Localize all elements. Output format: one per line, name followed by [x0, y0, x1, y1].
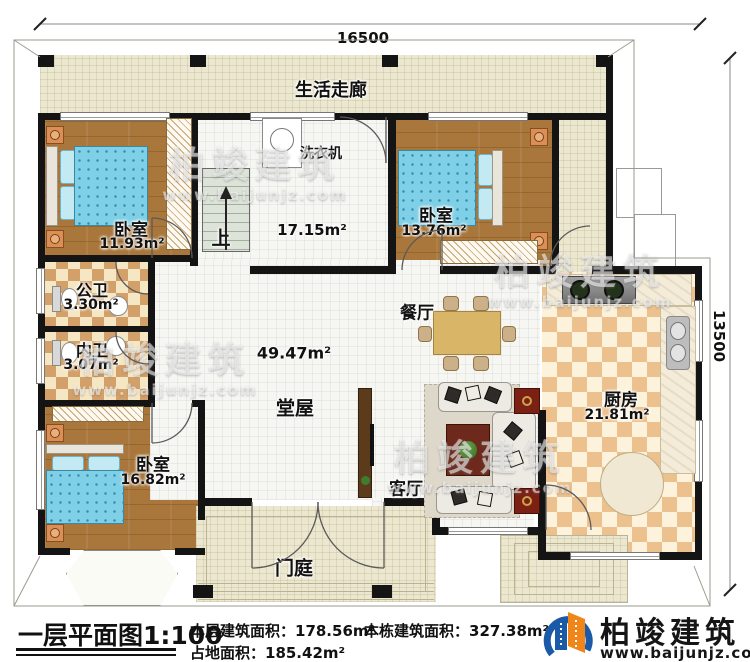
dining-chair	[473, 296, 489, 311]
wall	[440, 266, 556, 274]
entry-steps	[198, 576, 434, 600]
room-label-porch: 门庭	[275, 554, 313, 581]
wall	[552, 113, 559, 266]
dimension-right: 13500	[710, 310, 728, 362]
column	[38, 55, 54, 67]
sofa-pillow	[477, 491, 493, 507]
sofa-pillow	[465, 385, 482, 402]
window	[428, 112, 528, 121]
mat-ornament	[522, 396, 532, 406]
room-area-bedroom-tr: 13.76m²	[401, 223, 466, 239]
wardrobe	[52, 406, 144, 422]
dining-chair	[473, 356, 489, 371]
sofa	[436, 486, 512, 514]
pillow	[478, 188, 493, 220]
washing-machine-drum	[270, 128, 294, 152]
bed	[74, 146, 148, 226]
room-label-hall: 堂屋	[276, 394, 314, 421]
company-logo-icon	[538, 608, 594, 662]
porch-column	[372, 585, 392, 598]
washer-label: 洗衣机	[300, 143, 342, 163]
mat-ornament	[522, 496, 532, 506]
corridor-side-strip	[556, 115, 606, 273]
window	[36, 430, 45, 510]
pillow	[52, 456, 84, 471]
nightstand	[46, 230, 64, 248]
dining-chair	[418, 326, 432, 342]
burner	[570, 280, 590, 300]
wardrobe	[440, 240, 538, 264]
title-underline	[16, 648, 176, 651]
room-label-corridor: 生活走廊	[295, 76, 367, 102]
wall	[388, 113, 396, 274]
dimension-top: 16500	[337, 29, 389, 47]
wall	[592, 266, 702, 274]
nightstand	[46, 126, 64, 144]
company-website: www.baijunjz.com	[600, 644, 750, 662]
round-table	[600, 452, 664, 516]
room-label-dining: 餐厅	[400, 299, 434, 324]
sink-bowl	[670, 344, 686, 362]
room-area-kitchen: 21.81m²	[584, 407, 649, 423]
bed-headboard	[492, 150, 503, 226]
stat-floor-area: 本层建筑面积：178.56m²	[190, 620, 375, 641]
pillow	[478, 154, 493, 186]
bed-headboard	[46, 146, 58, 226]
wall	[38, 326, 155, 332]
tv	[370, 424, 374, 466]
plant	[361, 476, 370, 485]
room-area-hall: 49.47m²	[257, 344, 331, 363]
window	[570, 552, 660, 560]
nightstand	[46, 524, 64, 542]
room-area-bedroom-tl: 11.93m²	[99, 236, 164, 252]
toilet	[52, 340, 61, 366]
wall	[538, 410, 546, 560]
room-area-bath-public: 3.30m²	[63, 297, 118, 313]
wall	[175, 548, 205, 555]
wall	[198, 498, 252, 506]
plant	[459, 441, 477, 459]
title-underline	[16, 654, 176, 656]
nightstand	[46, 424, 64, 442]
wall	[606, 55, 613, 273]
toilet	[52, 286, 61, 312]
room-label-living: 客厅	[389, 475, 423, 500]
dining-table	[433, 311, 501, 355]
dining-chair	[502, 326, 516, 342]
wall	[250, 266, 396, 274]
column	[382, 55, 398, 67]
room-area-bath-ensuite: 3.07m²	[63, 357, 118, 373]
burner	[604, 280, 624, 300]
dining-chair	[443, 356, 459, 371]
room-area-utility: 17.15m²	[277, 221, 347, 239]
chimney-box	[616, 168, 662, 218]
basin	[106, 336, 126, 356]
wardrobe	[166, 118, 192, 250]
window	[60, 112, 170, 121]
window	[36, 268, 45, 314]
stairs-up-label: 上	[211, 224, 230, 251]
wall	[38, 255, 198, 262]
porch-column	[193, 585, 213, 598]
bay-window	[66, 550, 178, 606]
title-block: 一层平面图1:100 本层建筑面积：178.56m² 本栋建筑面积：327.38…	[0, 608, 750, 662]
wall	[38, 548, 70, 555]
stat-building-area: 本栋建筑面积：327.38m²	[364, 620, 549, 641]
dining-chair	[443, 296, 459, 311]
pillow	[88, 456, 120, 471]
bed-headboard	[46, 444, 124, 454]
floor-plan-page: 生活走廊 卧室 11.93m² 洗衣机 17.15m² 上 卧室 13.76m²…	[0, 0, 750, 662]
sink-bowl	[670, 322, 686, 340]
bed	[46, 470, 124, 524]
room-area-bedroom-bl: 16.82m²	[120, 472, 185, 488]
window	[448, 527, 528, 535]
window	[36, 338, 45, 384]
stat-footprint-area: 占地面积：185.42m²	[190, 642, 345, 662]
column	[190, 55, 206, 67]
nightstand	[530, 128, 548, 146]
